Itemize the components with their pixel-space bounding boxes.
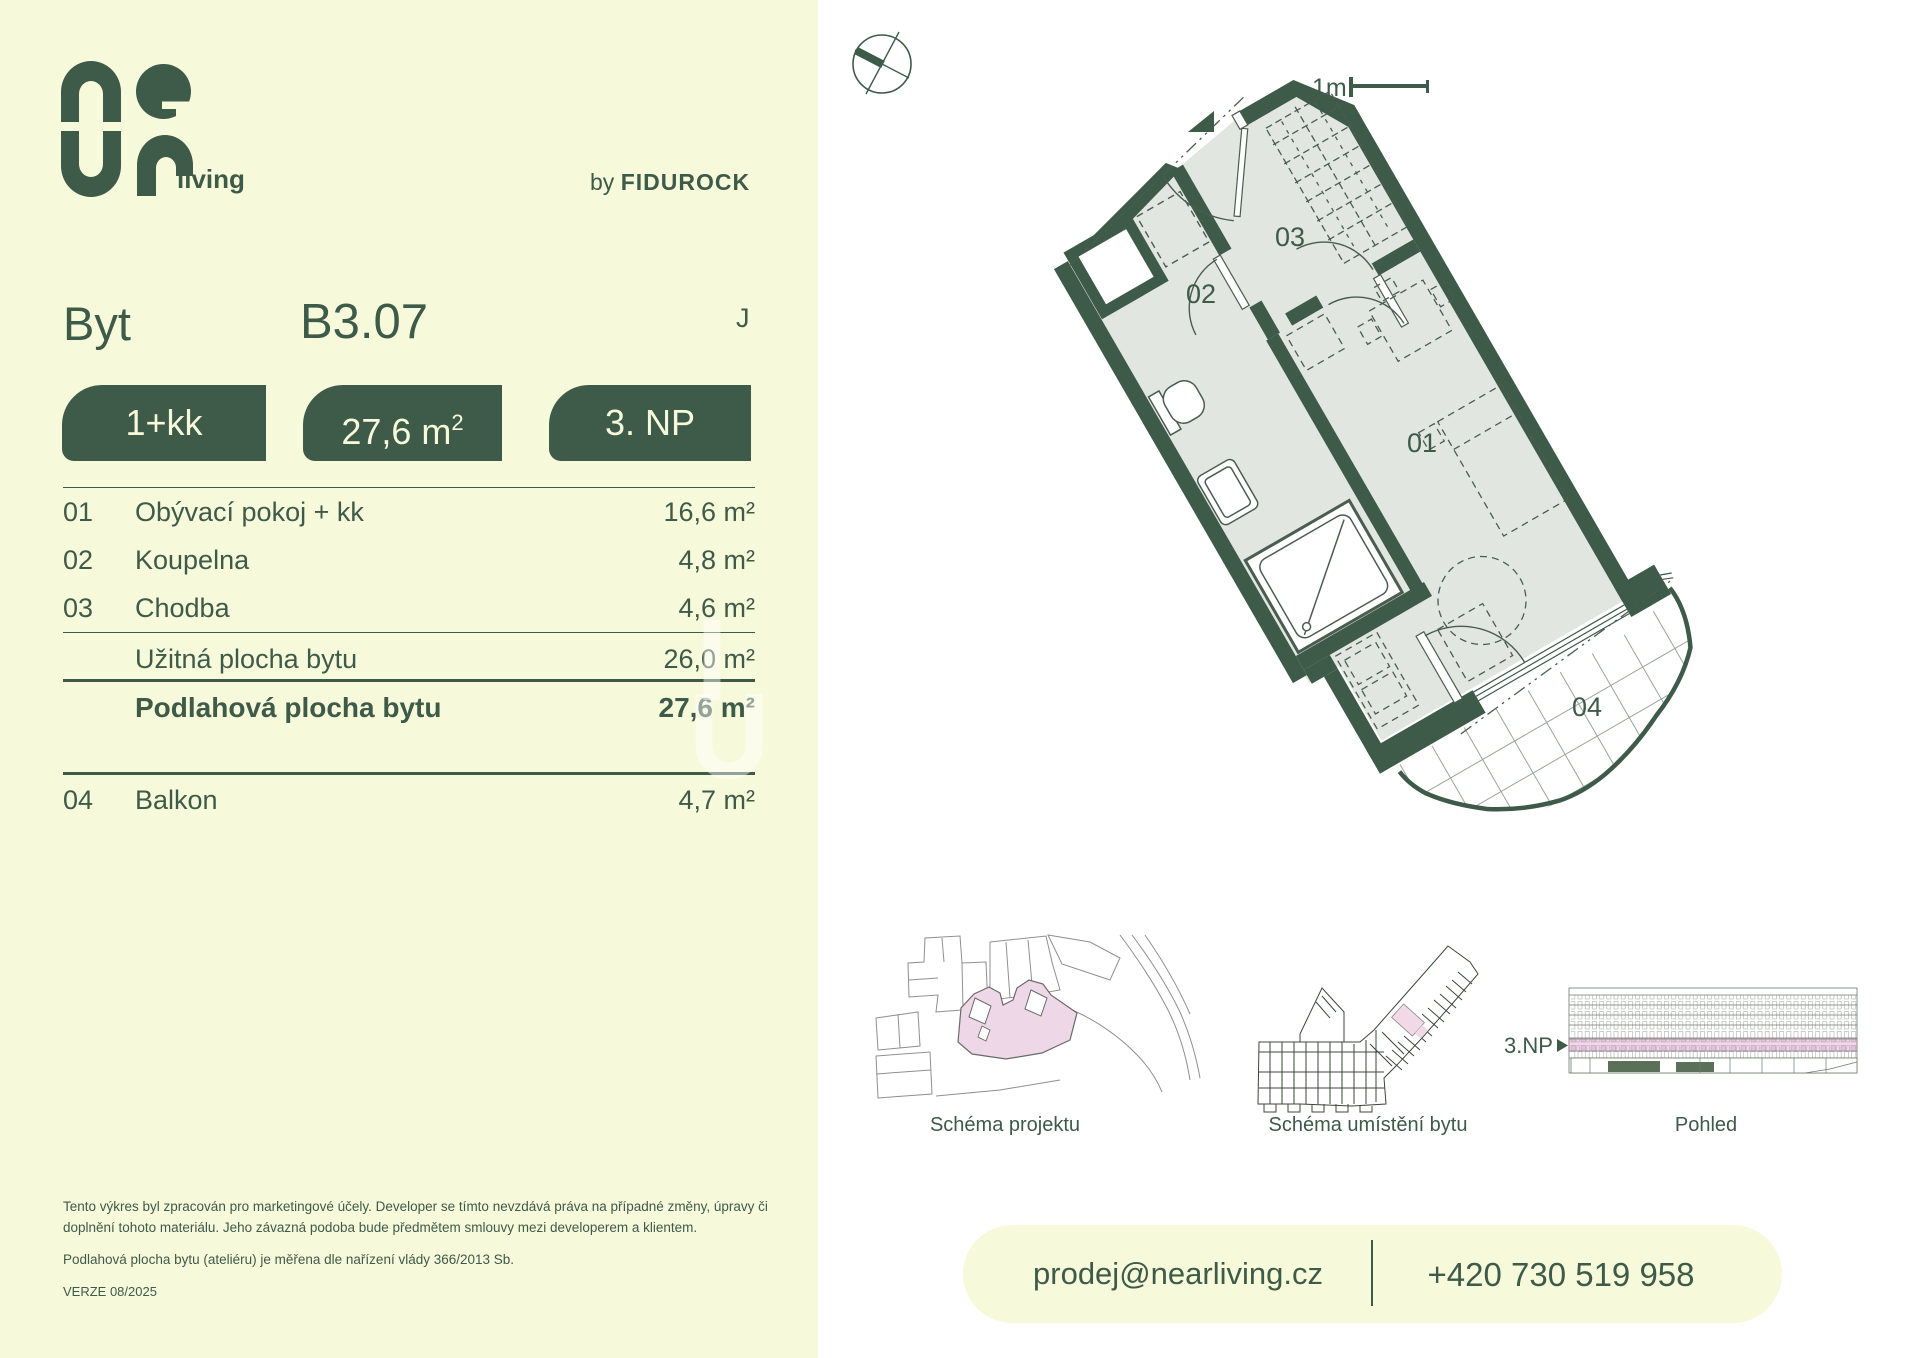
- svg-text:3.NP: 3.NP: [1504, 1033, 1553, 1058]
- svg-text:03: 03: [1275, 222, 1305, 252]
- svg-text:01: 01: [1407, 428, 1437, 458]
- svg-text:02: 02: [1186, 279, 1216, 309]
- svg-text:04: 04: [1572, 692, 1602, 722]
